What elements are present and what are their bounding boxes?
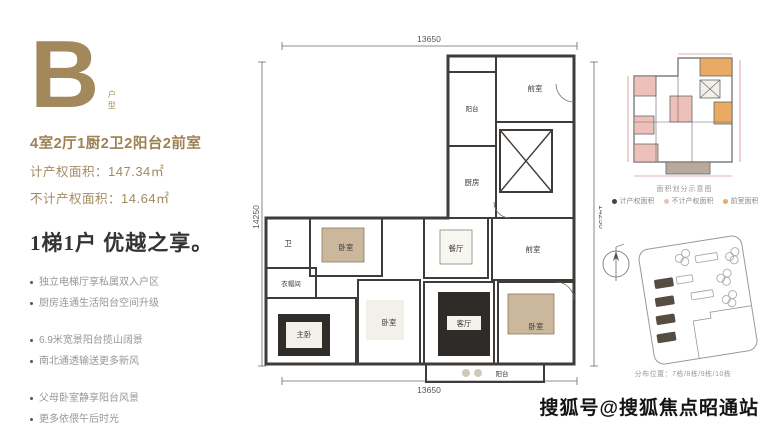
dim-right: 14250 bbox=[597, 205, 602, 229]
room-bedroom-topleft: 卧室 bbox=[339, 242, 354, 252]
site-boundary bbox=[638, 235, 759, 366]
mini-unit-diagram bbox=[612, 50, 762, 184]
dim-bottom: 13650 bbox=[417, 385, 441, 395]
area-legend: 计产权面积不计产权面积前室面积 bbox=[598, 196, 769, 206]
room-frontroom-lower: 前室 bbox=[526, 244, 541, 254]
legend-dot-icon bbox=[723, 199, 728, 204]
bullet-text: 6.9米宽景阳台揽山阔景 bbox=[39, 330, 143, 352]
legend-label: 不计产权面积 bbox=[672, 196, 714, 206]
bullet-text: 父母卧室静享阳台风景 bbox=[39, 388, 139, 410]
bullet-dot bbox=[30, 360, 33, 363]
siteplan bbox=[598, 234, 768, 368]
bullet-text: 更多依偎午后时光 bbox=[39, 409, 119, 426]
room-dining: 餐厅 bbox=[449, 244, 464, 253]
room-bath: 卫 bbox=[284, 239, 292, 248]
legend-item: 前室面积 bbox=[723, 196, 759, 206]
bullet-dot bbox=[30, 302, 33, 305]
legend-item: 计产权面积 bbox=[612, 196, 655, 206]
bullet-dot bbox=[30, 339, 33, 342]
bullet-group: 独立电梯厅享私属双入户区厨房连通生活阳台空间升级 bbox=[30, 272, 248, 315]
plan-letter-subtitle: 户型 bbox=[106, 90, 117, 112]
bullet-item: 6.9米宽景阳台揽山阔景 bbox=[30, 330, 248, 352]
plan-letter-block: B 户型 bbox=[30, 34, 248, 116]
mini-outline bbox=[634, 58, 732, 174]
legend-dot-icon bbox=[664, 199, 669, 204]
bullet-group: 6.9米宽景阳台揽山阔景南北通透输送更多新风 bbox=[30, 330, 248, 373]
dim-top: 13650 bbox=[417, 34, 441, 44]
room-balcony-bottom: 阳台 bbox=[496, 369, 509, 378]
room-closet: 衣帽间 bbox=[281, 279, 301, 288]
area2-value: 14.64㎡ bbox=[121, 191, 170, 206]
floorplan: 13650 13650 14250 14250 bbox=[252, 32, 602, 396]
layout-title: 4室2厅1厨2卫2阳台2前室 bbox=[30, 132, 248, 153]
siteplan-caption: 分布位置：7栋/8栋/9栋/10栋 bbox=[598, 369, 768, 379]
mini-diagram-svg bbox=[612, 50, 762, 184]
legend-label: 计产权面积 bbox=[620, 196, 655, 206]
plan-letter: B bbox=[30, 34, 99, 116]
bullet-dot bbox=[30, 397, 33, 400]
mini-diagram-caption: 面积划分示意图 bbox=[602, 184, 767, 194]
bullet-item: 厨房连通生活阳台空间升级 bbox=[30, 293, 248, 315]
headline: 1梯1户 优越之享。 bbox=[30, 227, 248, 257]
bullet-dot bbox=[30, 418, 33, 421]
bullet-dot bbox=[30, 281, 33, 284]
bullet-item: 父母卧室静享阳台风景 bbox=[30, 388, 248, 410]
dim-left: 14250 bbox=[252, 205, 261, 229]
floorplan-svg: 13650 13650 14250 14250 bbox=[252, 32, 602, 396]
legend-label: 前室面积 bbox=[731, 196, 759, 206]
bullet-group: 父母卧室静享阳台风景更多依偎午后时光 bbox=[30, 388, 248, 426]
area2-label: 不计产权面积： bbox=[30, 192, 121, 206]
room-frontroom-top: 前室 bbox=[528, 83, 543, 93]
compass-icon bbox=[603, 244, 629, 281]
plan-body bbox=[266, 56, 574, 382]
area1-label: 计产权面积： bbox=[30, 165, 108, 179]
room-bedroom-right: 卧室 bbox=[529, 321, 544, 331]
floorplan-ad-page: B 户型 4室2厅1厨2卫2阳台2前室 计产权面积：147.34㎡ 不计产权面积… bbox=[0, 0, 769, 426]
bullet-item: 更多依偎午后时光 bbox=[30, 409, 248, 426]
left-info-panel: B 户型 4室2厅1厨2卫2阳台2前室 计产权面积：147.34㎡ 不计产权面积… bbox=[30, 34, 248, 426]
room-bedroom-center: 卧室 bbox=[382, 317, 397, 327]
watermark: 搜狐号@搜狐焦点昭通站 bbox=[539, 393, 759, 420]
legend-dot-icon bbox=[612, 199, 617, 204]
room-balcony-top: 阳台 bbox=[466, 104, 479, 113]
room-living: 客厅 bbox=[457, 318, 472, 328]
area1-value: 147.34㎡ bbox=[108, 164, 164, 179]
area-line-2: 不计产权面积：14.64㎡ bbox=[30, 188, 248, 207]
bullet-item: 南北通透输送更多新风 bbox=[30, 351, 248, 373]
bullet-item: 独立电梯厅享私属双入户区 bbox=[30, 272, 248, 294]
siteplan-svg bbox=[598, 234, 768, 368]
bullet-text: 厨房连通生活阳台空间升级 bbox=[39, 293, 159, 315]
room-kitchen: 厨房 bbox=[465, 177, 480, 187]
area-line-1: 计产权面积：147.34㎡ bbox=[30, 161, 248, 180]
bullet-list: 独立电梯厅享私属双入户区厨房连通生活阳台空间升级6.9米宽景阳台揽山阔景南北通透… bbox=[30, 272, 248, 426]
legend-item: 不计产权面积 bbox=[664, 196, 714, 206]
room-master: 主卧 bbox=[297, 329, 312, 339]
bullet-text: 南北通透输送更多新风 bbox=[39, 351, 139, 373]
bullet-text: 独立电梯厅享私属双入户区 bbox=[39, 272, 159, 294]
